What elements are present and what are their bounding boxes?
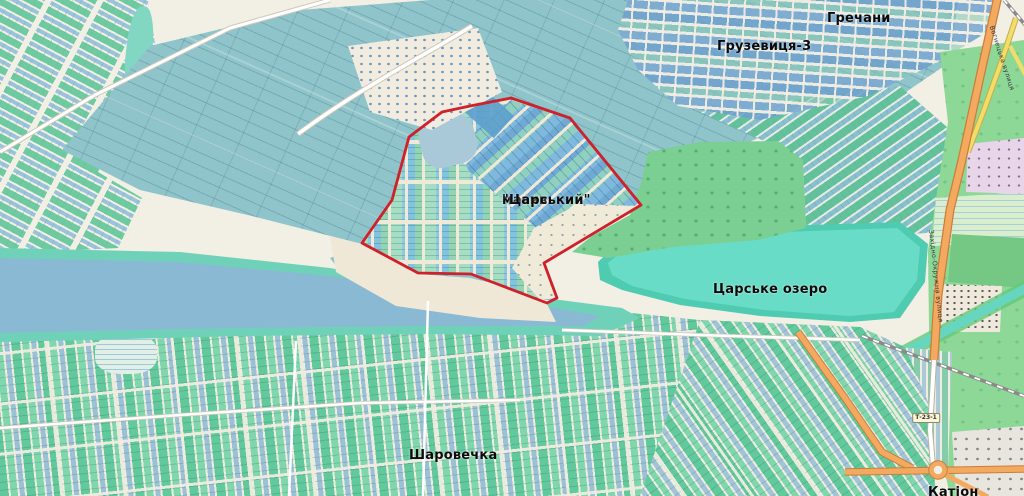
road-labels-layer: Західно-Окружна вулицяВогнецька вулиця [0,0,1024,496]
road-shield: Т-23-1 [912,413,940,423]
road-label-zakhidno-okruzhna: Західно-Окружна вулиця [927,229,945,322]
map-viewport[interactable]: ГречаниГрузевиця-3масив"Царський"Царське… [0,0,1024,496]
road-label-vohnetska: Вогнецька вулиця [988,25,1016,92]
